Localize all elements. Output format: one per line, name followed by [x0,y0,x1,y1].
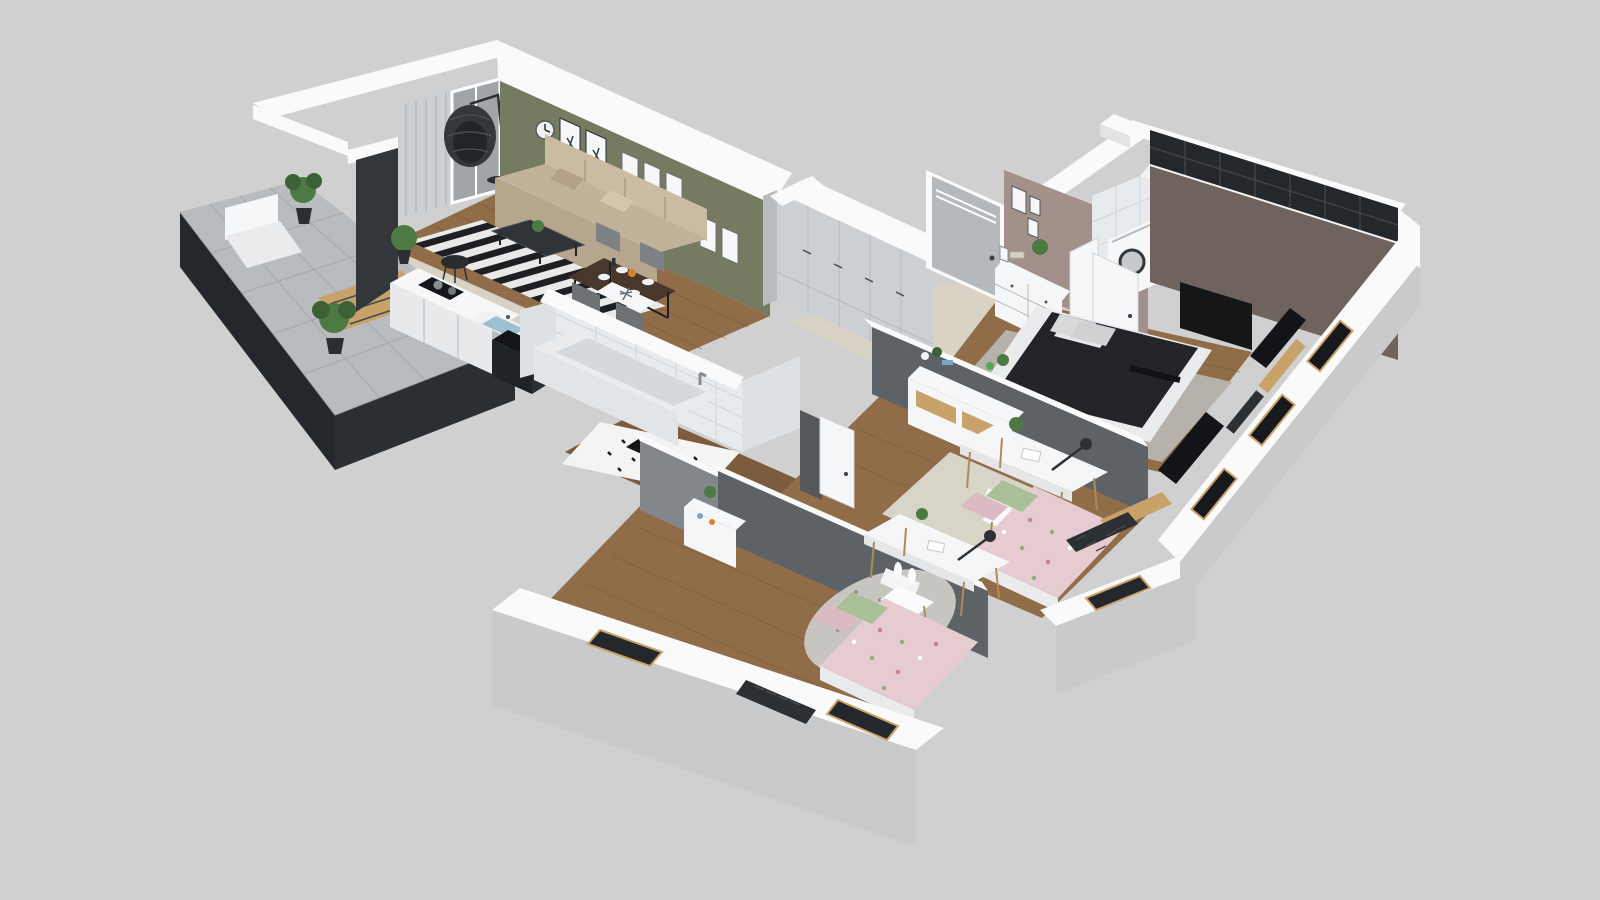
chair-ear [908,568,916,584]
toy-bear [921,352,929,360]
pot [434,281,443,290]
desk-plant [916,508,928,520]
floorplan-canvas [0,0,1600,900]
plant-leaves [285,174,301,190]
plate [598,274,610,280]
door-handle [844,472,848,476]
fruit-bowl [628,269,636,277]
books [942,360,953,365]
plate [642,279,654,285]
toy [709,519,715,525]
door-handle [1128,314,1132,318]
door-handle [990,256,995,261]
hanging-chair-seat [453,121,487,163]
desk-lamp [984,530,996,542]
chair-ear [894,562,902,578]
toy-deer [986,362,994,370]
doorway [800,410,822,500]
plant-pot [326,338,344,354]
kid1-door [820,416,854,508]
hall-wall-sliver [763,190,777,306]
plant-leaves [306,173,322,189]
picture-frame [722,227,738,264]
plant-leaves [338,301,356,319]
living-plant [391,225,417,251]
table-plant [532,220,544,232]
pot [448,287,456,295]
plate [616,267,628,273]
plant [932,347,942,357]
knob [1045,301,1048,304]
shelf-plant [704,486,716,498]
plant [997,354,1009,366]
toy [697,513,703,519]
faucet [506,315,510,319]
floorplan-stage [0,0,1600,900]
bottle [612,258,616,266]
desk-lamp [1080,438,1092,450]
plant-leaves [312,301,330,319]
desk-plant [1009,417,1023,431]
